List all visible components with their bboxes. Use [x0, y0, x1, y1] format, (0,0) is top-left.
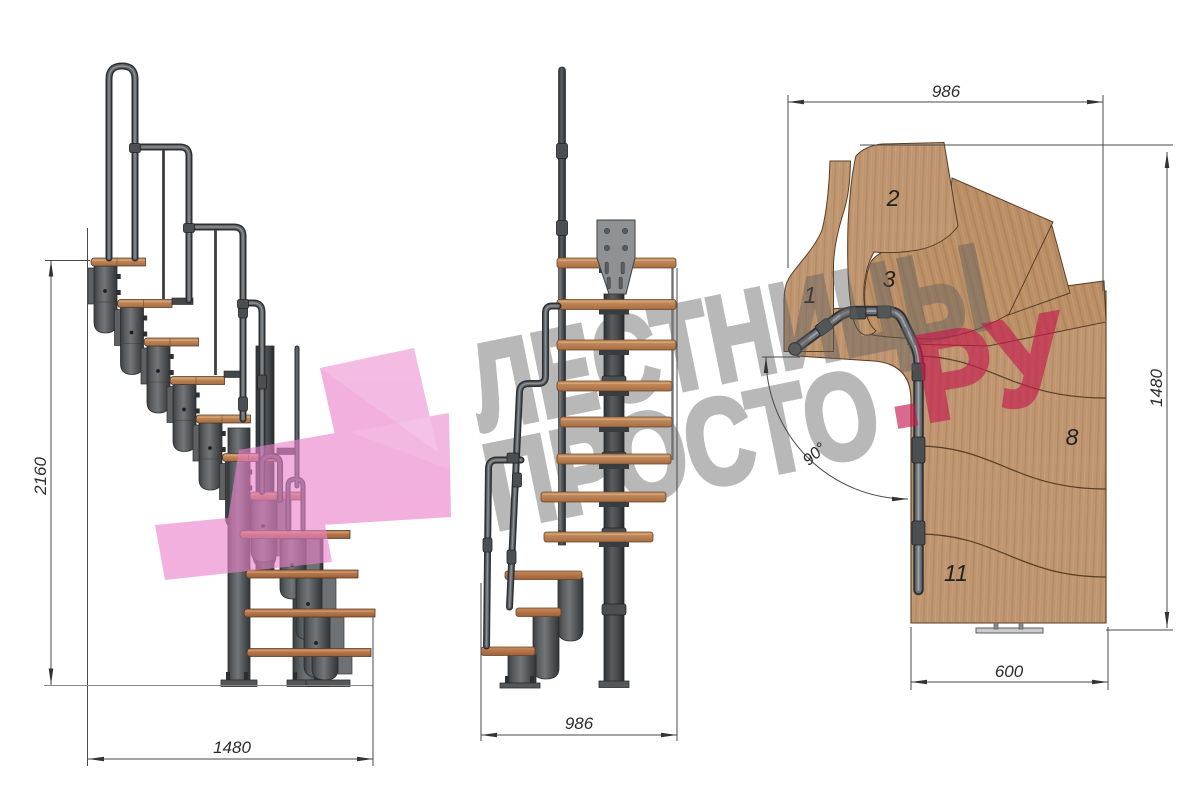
svg-text:2: 2 — [886, 185, 900, 211]
svg-text:8: 8 — [1066, 424, 1079, 450]
svg-text:600: 600 — [995, 662, 1024, 681]
svg-text:986: 986 — [932, 82, 961, 101]
svg-text:1480: 1480 — [1147, 369, 1166, 407]
svg-text:11: 11 — [944, 560, 968, 586]
svg-text:986: 986 — [565, 714, 594, 733]
svg-text:2160: 2160 — [31, 457, 50, 496]
svg-text:1480: 1480 — [213, 738, 251, 757]
